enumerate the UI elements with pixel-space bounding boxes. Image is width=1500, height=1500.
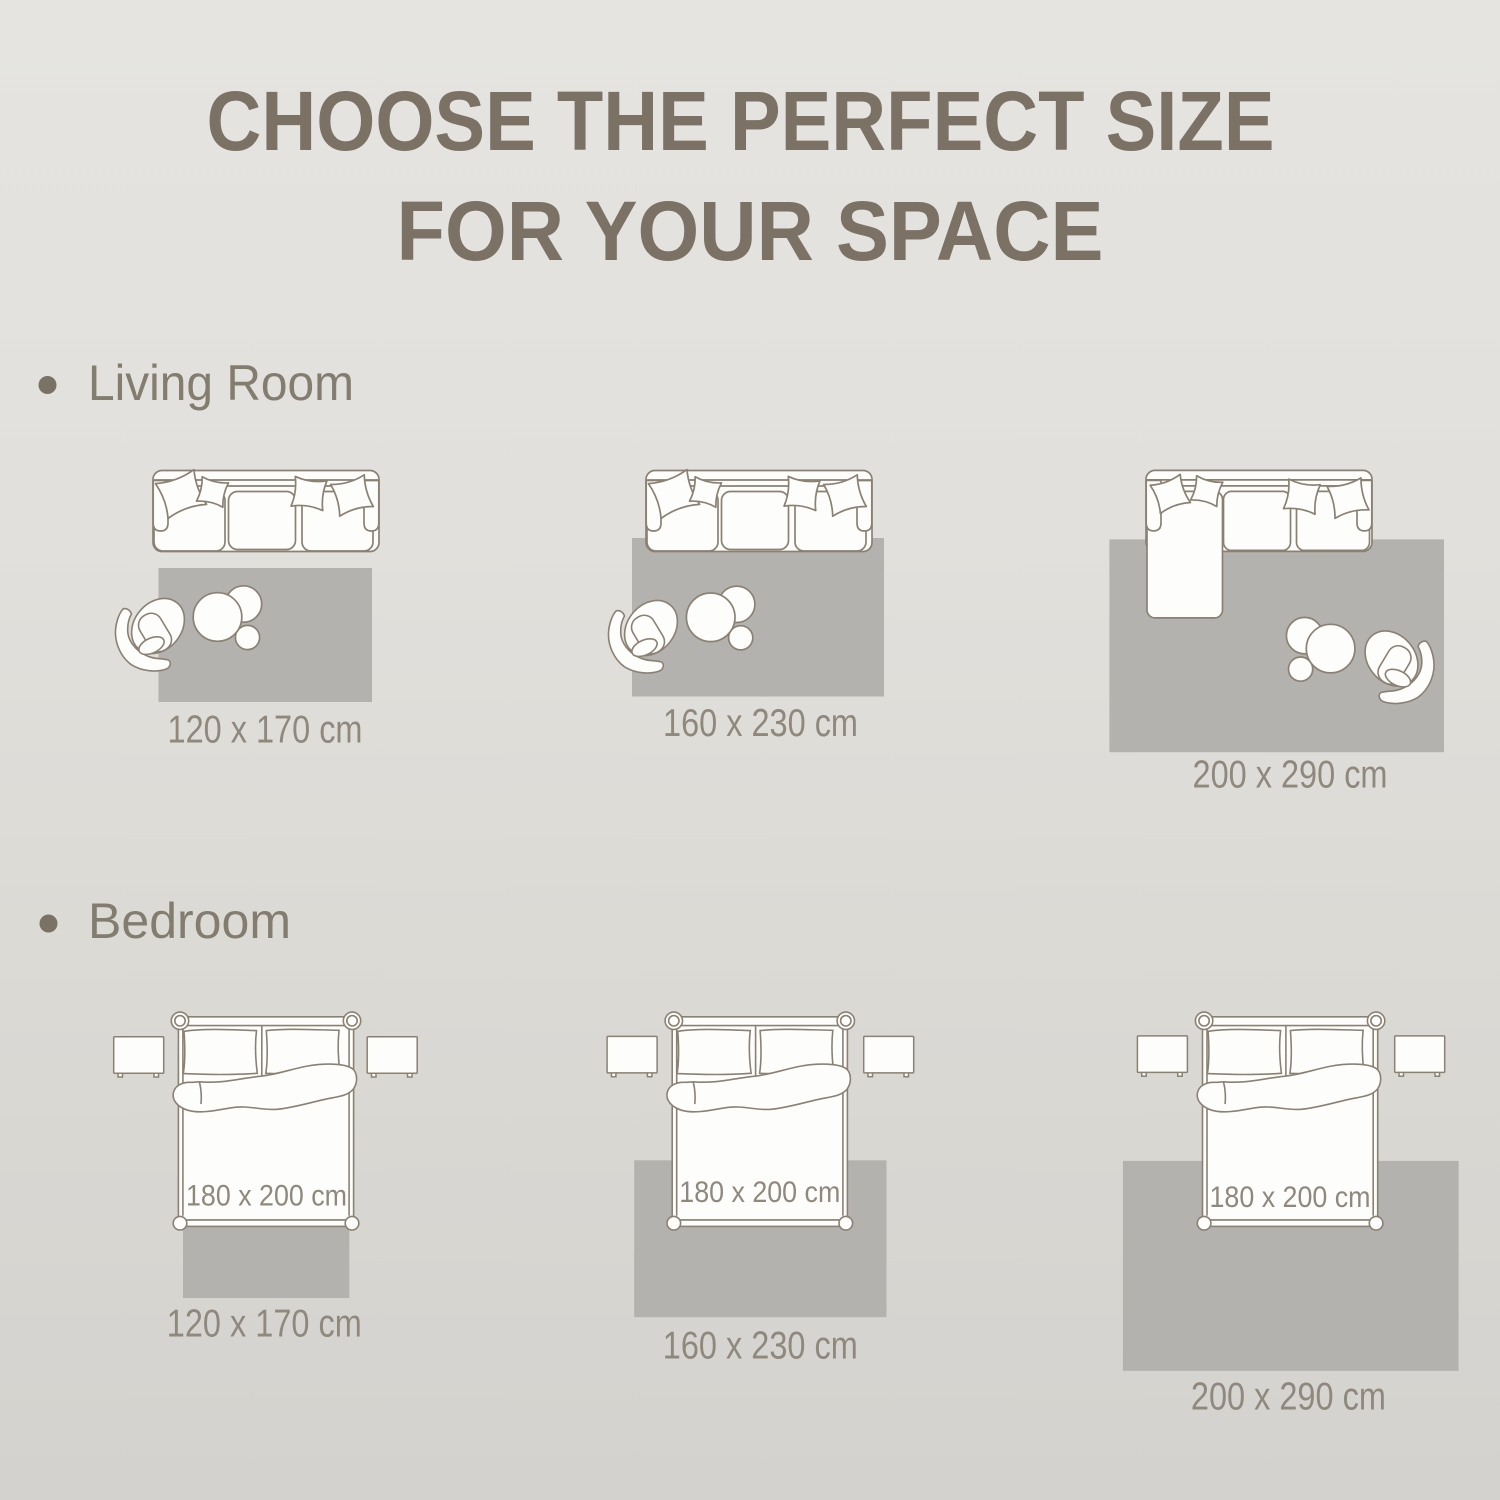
svg-text:200 x 290 cm: 200 x 290 cm: [1193, 753, 1388, 796]
svg-text:200 x 290 cm: 200 x 290 cm: [1191, 1375, 1386, 1418]
svg-text:120 x 170 cm: 120 x 170 cm: [168, 708, 363, 751]
svg-text:Bedroom: Bedroom: [88, 893, 291, 949]
svg-text:FOR YOUR SPACE: FOR YOUR SPACE: [397, 184, 1104, 278]
svg-text:180 x 200 cm: 180 x 200 cm: [186, 1179, 347, 1212]
svg-text:160 x 230 cm: 160 x 230 cm: [663, 702, 858, 745]
svg-text:Living Room: Living Room: [88, 355, 354, 411]
svg-text:120 x 170 cm: 120 x 170 cm: [167, 1302, 362, 1345]
svg-text:180 x 200 cm: 180 x 200 cm: [679, 1176, 840, 1209]
svg-text:CHOOSE THE PERFECT SIZE: CHOOSE THE PERFECT SIZE: [207, 74, 1275, 168]
svg-text:180 x 200 cm: 180 x 200 cm: [1210, 1181, 1371, 1214]
svg-text:160 x 230 cm: 160 x 230 cm: [663, 1324, 858, 1367]
